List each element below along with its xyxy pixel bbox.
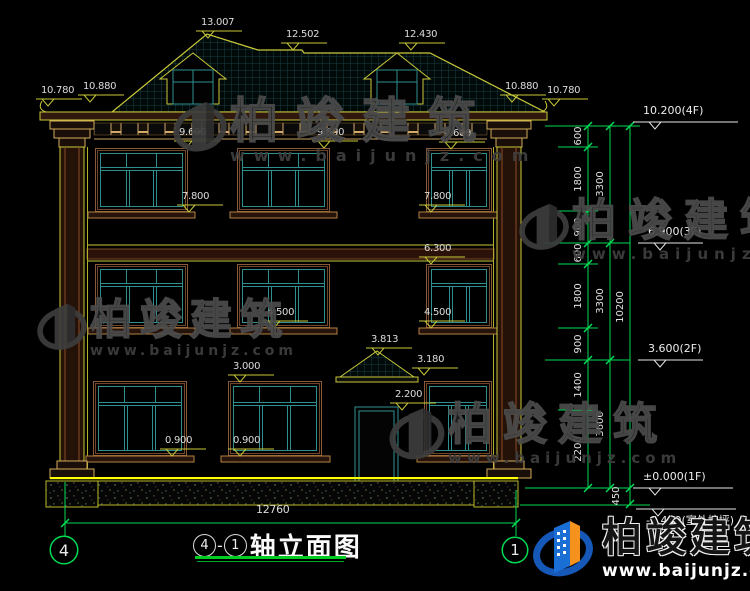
footer-logo-icon	[532, 516, 598, 578]
level-label: 10.200(4F)	[643, 105, 703, 117]
title-underline	[195, 556, 346, 559]
axis-bubble-1: 1	[502, 537, 528, 563]
dimension-label: 0.900	[165, 435, 192, 446]
level-label: ±0.000(1F)	[643, 471, 706, 483]
chain-dim-label: 1400	[574, 372, 584, 397]
dimension-label: 2.200	[395, 389, 422, 400]
chain-dim-label: 600	[574, 243, 584, 262]
chain-dim-label: 3600	[596, 411, 606, 436]
title-axis-to: 1	[231, 538, 239, 553]
dimension-label: 3.000	[233, 361, 260, 372]
dimension-label: 7.800	[182, 191, 209, 202]
dimension-label: 3.180	[417, 354, 444, 365]
dimension-label: 12.502	[286, 29, 319, 40]
title-axis-from-bubble: 4	[193, 534, 216, 557]
chain-dim-label: 900	[574, 217, 584, 236]
chain-dim-label: 10200	[616, 291, 626, 323]
dimension-label: 10.880	[83, 81, 116, 92]
chain-dim-label: 1800	[574, 166, 584, 191]
title-separator: -	[217, 536, 223, 555]
cad-elevation-screenshot: 13.00712.50212.43010.78010.88010.88010.7…	[0, 0, 750, 591]
footer-logo: 柏竣建筑 www.baijunjz.com	[532, 516, 750, 581]
overall-width-dimension: 12760	[256, 504, 290, 515]
dimension-label: 9.600	[444, 128, 471, 139]
dimension-label: 9.600	[179, 127, 206, 138]
title-axis-to-bubble: 1	[224, 534, 247, 557]
chain-dim-label: 3300	[596, 288, 606, 313]
dimension-label: 4.500	[424, 307, 451, 318]
level-label: 3.600(2F)	[648, 343, 701, 355]
chain-dim-label: 450	[612, 486, 622, 505]
dimension-label: 6.300	[424, 243, 451, 254]
axis-bubble-1-label: 1	[510, 541, 520, 559]
dimension-label: 7.800	[424, 191, 451, 202]
footer-logo-url: www.baijunjz.com	[602, 561, 750, 581]
dimension-label: 9.600	[317, 127, 344, 138]
chain-dim-label: 1800	[574, 283, 584, 308]
dimension-label: 12.430	[404, 29, 437, 40]
dimension-label: 13.007	[201, 17, 234, 28]
title-underline-thin	[197, 561, 344, 562]
chain-dim-label: 2200	[574, 436, 584, 461]
dimension-label: 4.500	[267, 307, 294, 318]
dimension-label: 3.813	[371, 334, 398, 345]
level-label: 6.900(3F)	[648, 226, 701, 238]
dimension-label: 10.780	[41, 85, 74, 96]
chain-dim-label: 600	[574, 126, 584, 145]
chain-dim-label: 3300	[596, 171, 606, 196]
dimension-label: 10.880	[505, 81, 538, 92]
axis-bubble-4: 4	[50, 536, 78, 564]
dimension-label: 0.900	[233, 435, 260, 446]
title-axis-from: 4	[200, 538, 208, 553]
chain-dim-label: 900	[574, 334, 584, 353]
axis-bubble-4-label: 4	[59, 541, 69, 560]
footer-logo-brand: 柏竣建筑	[602, 516, 750, 560]
dimension-label: 10.780	[547, 85, 580, 96]
